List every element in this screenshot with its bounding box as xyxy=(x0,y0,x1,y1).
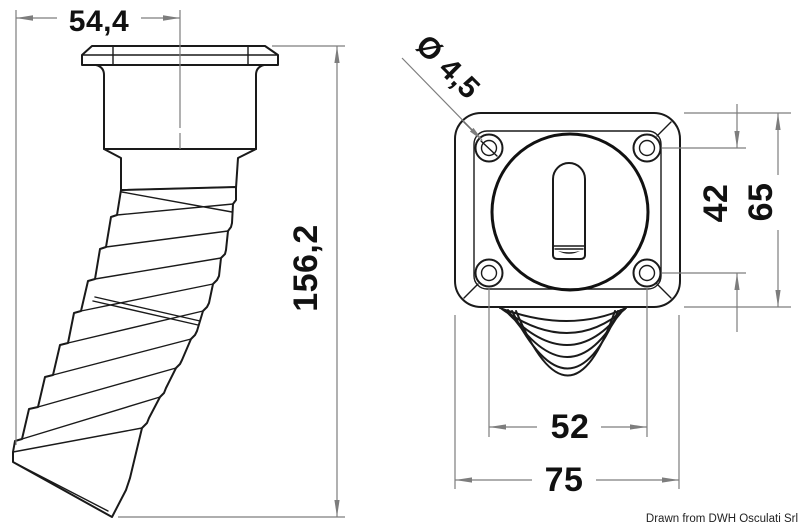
slot-shadow xyxy=(558,251,580,254)
credit-text: Drawn from DWH Osculati Srl xyxy=(646,513,798,525)
dim-label-flange-height: 65 xyxy=(742,183,780,222)
flange-outer xyxy=(455,113,680,307)
dimension-screw-hole: Ø 4,5 xyxy=(402,29,486,141)
technical-drawing: 54,4 156,2 Ø 4,5 42 xyxy=(0,0,800,526)
flange-inner xyxy=(474,131,661,289)
dim-label-hole-spacing-h: 52 xyxy=(551,408,590,446)
technical-drawing-canvas: 54,4 156,2 Ø 4,5 42 xyxy=(0,0,800,526)
hose-coils-front xyxy=(500,308,626,376)
dim-label-flange-width: 75 xyxy=(545,461,584,499)
dim-label-total-height: 156,2 xyxy=(287,224,325,312)
cap-circle xyxy=(492,134,648,290)
side-view xyxy=(13,46,278,517)
corrugated-hose xyxy=(13,187,236,517)
dim-label-screw-hole: Ø 4,5 xyxy=(409,29,486,106)
screw-holes xyxy=(476,135,661,287)
dim-label-hose-offset: 54,4 xyxy=(69,5,129,38)
dim-label-hole-spacing-v: 42 xyxy=(697,184,735,223)
key-slot xyxy=(553,163,585,259)
